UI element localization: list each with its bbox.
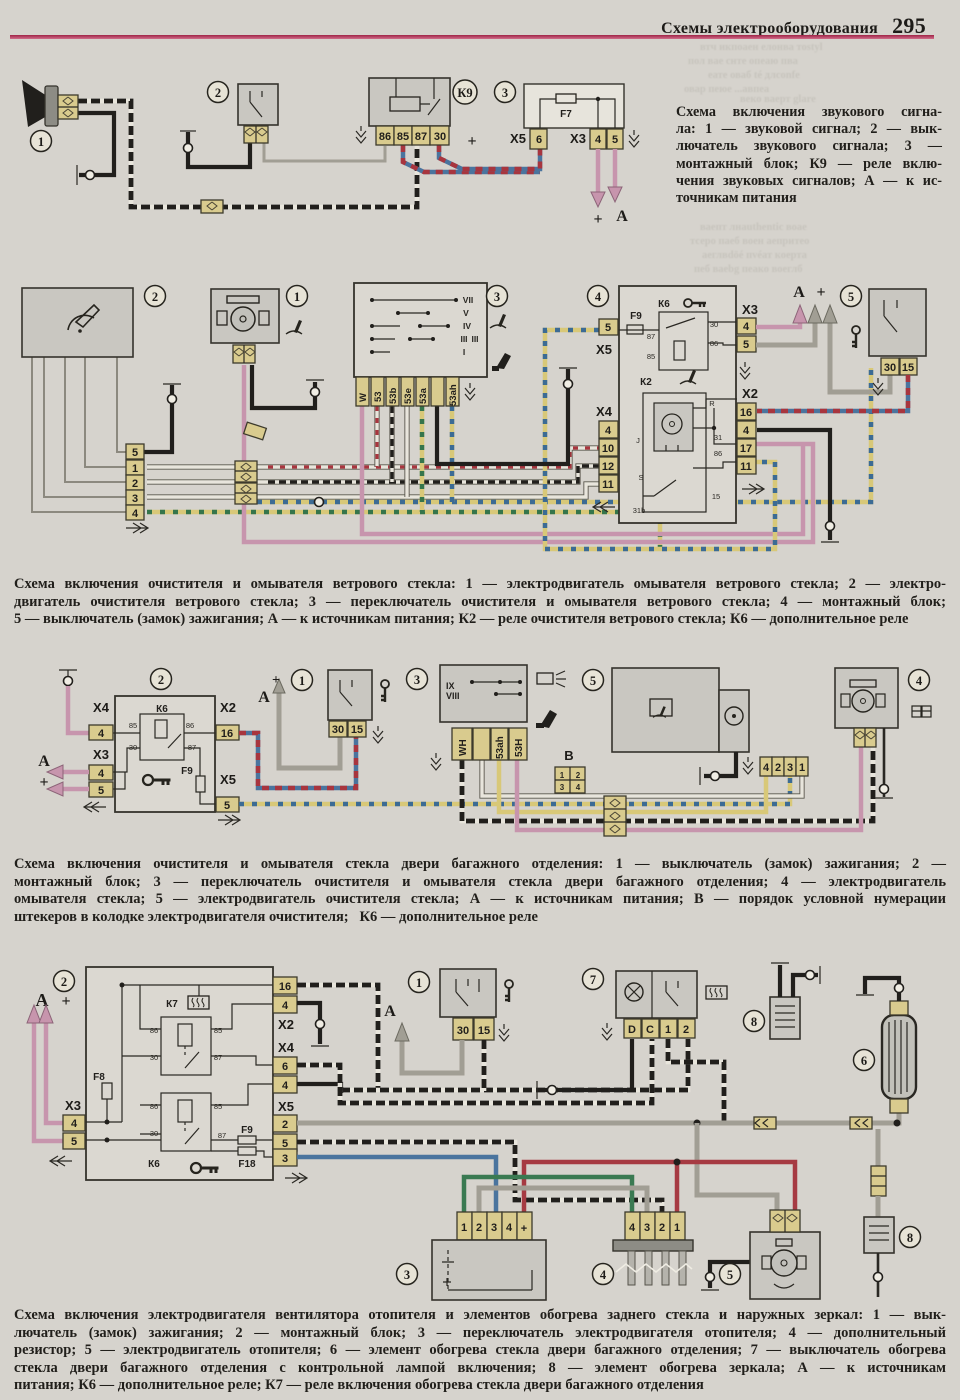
svg-text:53e: 53e xyxy=(403,388,414,404)
svg-text:4: 4 xyxy=(576,783,581,792)
svg-text:86: 86 xyxy=(150,1026,158,1035)
svg-text:Х4: Х4 xyxy=(596,404,613,419)
svg-text:1: 1 xyxy=(799,762,805,774)
svg-text:6: 6 xyxy=(536,134,542,146)
svg-text:Х3: Х3 xyxy=(570,131,586,146)
svg-text:87: 87 xyxy=(218,1131,226,1140)
svg-text:12: 12 xyxy=(602,461,614,473)
svg-text:15: 15 xyxy=(712,492,720,501)
svg-text:VIII: VIII xyxy=(446,691,460,701)
svg-text:F9: F9 xyxy=(630,311,642,322)
svg-text:4: 4 xyxy=(763,762,770,774)
svg-text:4: 4 xyxy=(595,134,602,146)
svg-text:86: 86 xyxy=(714,449,722,458)
svg-text:4: 4 xyxy=(743,321,750,333)
svg-text:В: В xyxy=(564,748,573,763)
svg-text:3: 3 xyxy=(132,493,138,505)
svg-text:3: 3 xyxy=(644,1222,650,1234)
svg-text:31b: 31b xyxy=(633,506,646,515)
svg-text:5: 5 xyxy=(727,1268,733,1282)
svg-text:2: 2 xyxy=(282,1119,288,1131)
svg-text:8: 8 xyxy=(907,1231,913,1245)
svg-text:К2: К2 xyxy=(640,377,652,388)
svg-text:J: J xyxy=(636,436,640,445)
svg-text:IV: IV xyxy=(463,321,471,331)
svg-text:16: 16 xyxy=(740,407,752,419)
svg-text:4: 4 xyxy=(600,1268,607,1282)
svg-text:5: 5 xyxy=(590,674,596,688)
svg-text:2: 2 xyxy=(215,86,221,100)
svg-text:R: R xyxy=(709,399,715,408)
svg-text:2: 2 xyxy=(61,975,67,989)
svg-text:4: 4 xyxy=(132,508,139,520)
svg-text:4: 4 xyxy=(98,728,105,740)
svg-text:1: 1 xyxy=(294,290,300,304)
svg-text:53ah: 53ah xyxy=(448,384,459,406)
svg-text:85: 85 xyxy=(129,721,137,730)
svg-text:К6: К6 xyxy=(658,299,670,310)
svg-text:Х3: Х3 xyxy=(65,1098,81,1113)
svg-text:4: 4 xyxy=(71,1118,78,1130)
svg-text:Х2: Х2 xyxy=(278,1017,294,1032)
svg-text:А: А xyxy=(793,284,805,301)
svg-text:4: 4 xyxy=(629,1222,636,1234)
svg-text:3: 3 xyxy=(787,762,793,774)
svg-text:1: 1 xyxy=(461,1222,467,1234)
svg-text:IX: IX xyxy=(446,681,455,691)
svg-text:1: 1 xyxy=(299,674,305,688)
svg-text:+: + xyxy=(521,1223,527,1235)
svg-text:2: 2 xyxy=(775,762,781,774)
svg-text:11: 11 xyxy=(602,479,614,491)
svg-text:15: 15 xyxy=(902,362,914,374)
svg-text:5: 5 xyxy=(98,785,104,797)
svg-text:2: 2 xyxy=(152,290,158,304)
svg-text:3: 3 xyxy=(502,86,508,100)
svg-text:5: 5 xyxy=(743,339,749,351)
svg-text:Х4: Х4 xyxy=(278,1040,295,1055)
svg-text:F9: F9 xyxy=(181,766,193,777)
svg-text:2: 2 xyxy=(132,478,138,490)
svg-text:Х5: Х5 xyxy=(510,131,526,146)
svg-text:3: 3 xyxy=(560,783,565,792)
svg-text:+: + xyxy=(272,673,280,688)
svg-text:17: 17 xyxy=(740,443,752,455)
svg-text:WH: WH xyxy=(458,739,469,756)
svg-text:87: 87 xyxy=(415,131,427,143)
svg-text:5: 5 xyxy=(71,1136,77,1148)
svg-text:5: 5 xyxy=(224,800,230,812)
svg-text:3: 3 xyxy=(494,290,500,304)
svg-text:4: 4 xyxy=(282,1000,289,1012)
svg-text:2: 2 xyxy=(683,1024,689,1036)
svg-text:53Н: 53Н xyxy=(514,739,525,757)
svg-text:F8: F8 xyxy=(93,1072,105,1083)
svg-text:16: 16 xyxy=(279,981,291,993)
svg-text:F7: F7 xyxy=(560,109,572,120)
svg-text:30: 30 xyxy=(884,362,896,374)
svg-text:30: 30 xyxy=(457,1025,469,1037)
svg-text:30: 30 xyxy=(434,131,446,143)
svg-text:4: 4 xyxy=(506,1222,513,1234)
svg-text:86: 86 xyxy=(150,1102,158,1111)
svg-text:85: 85 xyxy=(397,131,409,143)
svg-text:4: 4 xyxy=(595,290,602,304)
svg-text:5: 5 xyxy=(848,290,854,304)
svg-text:11: 11 xyxy=(740,461,752,473)
svg-text:+: + xyxy=(593,211,602,228)
svg-text:W: W xyxy=(358,393,369,402)
svg-text:1: 1 xyxy=(665,1024,671,1036)
svg-text:15: 15 xyxy=(478,1025,490,1037)
svg-text:15: 15 xyxy=(351,724,363,736)
svg-text:I: I xyxy=(463,347,465,357)
svg-text:31: 31 xyxy=(714,433,722,442)
svg-text:53a: 53a xyxy=(418,387,429,404)
svg-text:2: 2 xyxy=(659,1222,665,1234)
svg-text:5: 5 xyxy=(132,447,138,459)
svg-text:87: 87 xyxy=(647,332,655,341)
svg-text:Х2: Х2 xyxy=(220,700,236,715)
svg-text:+: + xyxy=(61,993,70,1010)
svg-text:2: 2 xyxy=(576,771,581,780)
svg-text:Х4: Х4 xyxy=(93,700,110,715)
svg-text:+: + xyxy=(467,133,476,150)
svg-text:А: А xyxy=(384,1003,396,1020)
svg-text:4: 4 xyxy=(743,425,750,437)
svg-text:F9: F9 xyxy=(241,1125,253,1136)
svg-text:4: 4 xyxy=(605,425,612,437)
svg-text:Х3: Х3 xyxy=(742,302,758,317)
svg-text:4: 4 xyxy=(916,674,923,688)
svg-text:30: 30 xyxy=(150,1053,158,1062)
svg-text:3: 3 xyxy=(414,673,420,687)
svg-text:6: 6 xyxy=(861,1054,867,1068)
svg-text:16: 16 xyxy=(221,728,233,740)
svg-text:А: А xyxy=(258,689,270,706)
svg-text:V: V xyxy=(463,308,469,318)
svg-text:C: C xyxy=(646,1024,654,1036)
svg-text:86: 86 xyxy=(186,721,194,730)
svg-text:10: 10 xyxy=(602,443,614,455)
svg-text:+: + xyxy=(816,284,825,301)
svg-text:3: 3 xyxy=(282,1153,288,1165)
svg-text:VII: VII xyxy=(463,295,473,305)
svg-text:3: 3 xyxy=(491,1222,497,1234)
svg-text:87: 87 xyxy=(214,1053,222,1062)
svg-text:А: А xyxy=(38,753,50,770)
svg-text:III: III xyxy=(471,334,478,344)
svg-text:1: 1 xyxy=(132,463,138,475)
svg-text:1: 1 xyxy=(38,135,44,149)
svg-text:85: 85 xyxy=(214,1026,222,1035)
svg-text:86: 86 xyxy=(379,131,391,143)
svg-text:30: 30 xyxy=(332,724,344,736)
svg-text:5: 5 xyxy=(612,134,618,146)
svg-text:5: 5 xyxy=(605,322,611,334)
svg-text:К7: К7 xyxy=(166,999,178,1010)
svg-text:F18: F18 xyxy=(238,1159,256,1170)
svg-text:III: III xyxy=(460,334,467,344)
svg-text:30: 30 xyxy=(710,320,718,329)
svg-text:Х5: Х5 xyxy=(220,772,236,787)
svg-text:3: 3 xyxy=(404,1268,410,1282)
svg-text:4: 4 xyxy=(282,1080,289,1092)
svg-text:53: 53 xyxy=(373,391,384,402)
svg-text:85: 85 xyxy=(647,352,655,361)
svg-text:53ah: 53ah xyxy=(495,736,506,759)
svg-text:5: 5 xyxy=(282,1138,288,1150)
svg-text:К6: К6 xyxy=(156,704,168,715)
svg-text:7: 7 xyxy=(590,973,596,987)
svg-text:6: 6 xyxy=(282,1061,288,1073)
svg-text:2: 2 xyxy=(158,673,164,687)
svg-text:8: 8 xyxy=(751,1015,757,1029)
svg-text:S: S xyxy=(638,473,643,482)
svg-text:1: 1 xyxy=(674,1222,680,1234)
svg-text:53b: 53b xyxy=(388,387,399,404)
svg-text:4: 4 xyxy=(98,768,105,780)
svg-text:А: А xyxy=(616,208,628,225)
svg-text:85: 85 xyxy=(214,1102,222,1111)
svg-text:1: 1 xyxy=(416,976,422,990)
svg-text:Х5: Х5 xyxy=(278,1099,294,1114)
svg-text:Х3: Х3 xyxy=(93,747,109,762)
svg-text:1: 1 xyxy=(560,771,565,780)
svg-text:К9: К9 xyxy=(457,86,472,100)
svg-text:Х5: Х5 xyxy=(596,342,612,357)
svg-text:D: D xyxy=(628,1024,636,1036)
svg-text:К6: К6 xyxy=(148,1159,160,1170)
svg-text:2: 2 xyxy=(476,1222,482,1234)
svg-text:Х2: Х2 xyxy=(742,386,758,401)
